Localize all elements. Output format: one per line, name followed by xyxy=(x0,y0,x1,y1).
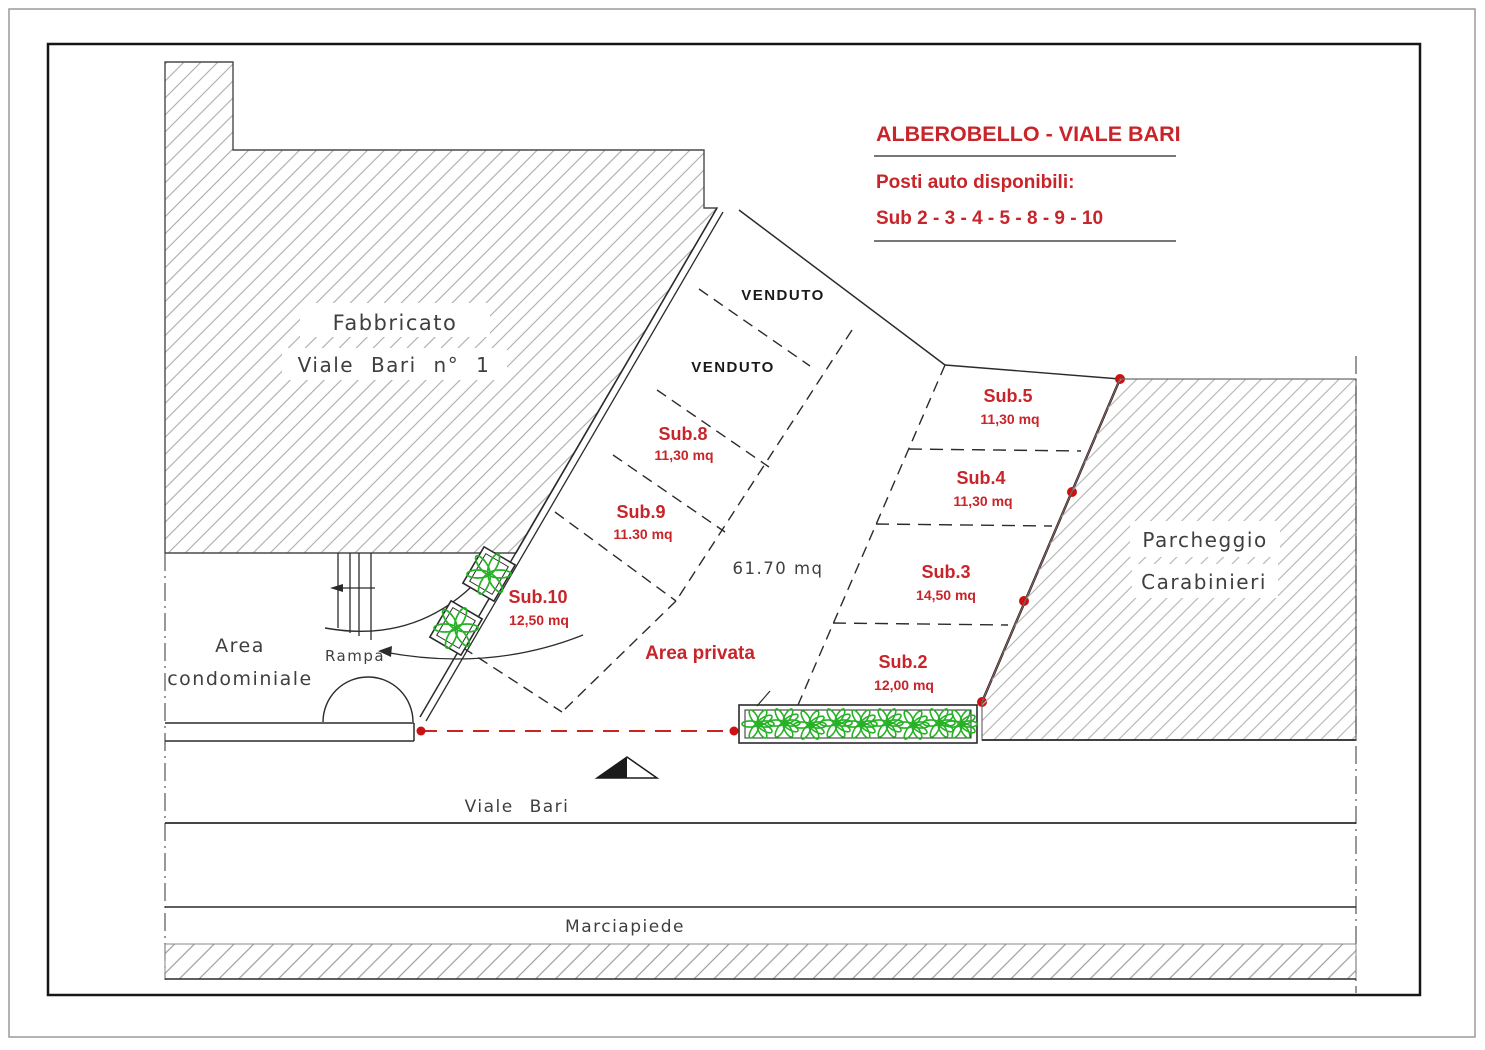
parcel-label-sub10: Sub.10 xyxy=(508,587,567,607)
sidewalk-hatched-strip xyxy=(165,944,1356,979)
title-line1: ALBEROBELLO - VIALE BARI xyxy=(876,122,1181,146)
parcel-label-sub4: Sub.4 xyxy=(956,468,1005,488)
parcel-label-sub5: Sub.5 xyxy=(983,386,1032,406)
parcel-area-sub8: 11,30 mq xyxy=(654,447,713,463)
parcheggio-label-line1: Parcheggio xyxy=(1142,528,1267,552)
parcel-area-sub10: 12,50 mq xyxy=(509,612,569,628)
parcel-area-sub4: 11,30 mq xyxy=(953,493,1012,509)
parcel-label-venduto-1: VENDUTO xyxy=(741,287,825,304)
parcel-area-sub2: 12,00 mq xyxy=(874,677,934,693)
drawing-page: Fabbricato Viale Bari n° 1 ALBEROBELLO -… xyxy=(0,0,1485,1050)
ramp-direction-arrow xyxy=(384,635,583,659)
area-privata-label: Area privata xyxy=(645,643,755,664)
rampa-label: Rampa xyxy=(325,647,385,665)
stair-arrowhead-icon xyxy=(330,584,343,592)
parcheggio-label-line2: Carabinieri xyxy=(1141,570,1267,594)
building-label-line2: Viale Bari n° 1 xyxy=(298,353,491,377)
parcel-label-sub2: Sub.2 xyxy=(878,652,927,672)
site-plan-drawing: Fabbricato Viale Bari n° 1 ALBEROBELLO -… xyxy=(0,0,1485,1050)
title-line3: Sub 2 - 3 - 4 - 5 - 8 - 9 - 10 xyxy=(876,208,1103,229)
roads: Viale Bari Marciapiede xyxy=(165,757,1356,979)
marciapiede-label: Marciapiede xyxy=(565,917,685,937)
area-condominiale-line2: condominiale xyxy=(167,668,313,690)
red-centerline xyxy=(417,727,739,736)
parcel-area-sub9: 11.30 mq xyxy=(613,526,672,542)
upper-sidewalk-strip xyxy=(165,723,414,741)
separator-sub3-sub2 xyxy=(833,623,1008,625)
parcel-label-sub9: Sub.9 xyxy=(616,502,665,522)
title-block: ALBEROBELLO - VIALE BARI Posti auto disp… xyxy=(874,122,1181,241)
separator-sub5-sub4 xyxy=(909,449,1081,451)
parcel-label-sub3: Sub.3 xyxy=(921,562,970,582)
title-line2: Posti auto disponibili: xyxy=(876,172,1074,193)
parcel-label-venduto-2: VENDUTO xyxy=(691,359,775,376)
viale-bari-label: Viale Bari xyxy=(465,797,570,817)
hedge-planter xyxy=(739,691,977,743)
hedge-tick xyxy=(757,691,770,706)
carabinieri-hatched-area xyxy=(982,379,1356,740)
area-condominiale-line1: Area xyxy=(215,635,265,657)
parcheggio-carabinieri-area: Parcheggio Carabinieri xyxy=(982,379,1356,740)
separator-sub4-sub3 xyxy=(876,524,1052,526)
parcel-area-sub3: 14,50 mq xyxy=(916,587,976,603)
building-label-line1: Fabbricato xyxy=(333,311,458,335)
ramp-arc-semicircle xyxy=(323,677,413,722)
boundary-top-east xyxy=(945,365,1120,379)
parcel-area-sub5: 11,30 mq xyxy=(980,411,1039,427)
open-area-size-label: 61.70 mq xyxy=(732,559,823,578)
parcel-label-sub8: Sub.8 xyxy=(658,424,707,444)
